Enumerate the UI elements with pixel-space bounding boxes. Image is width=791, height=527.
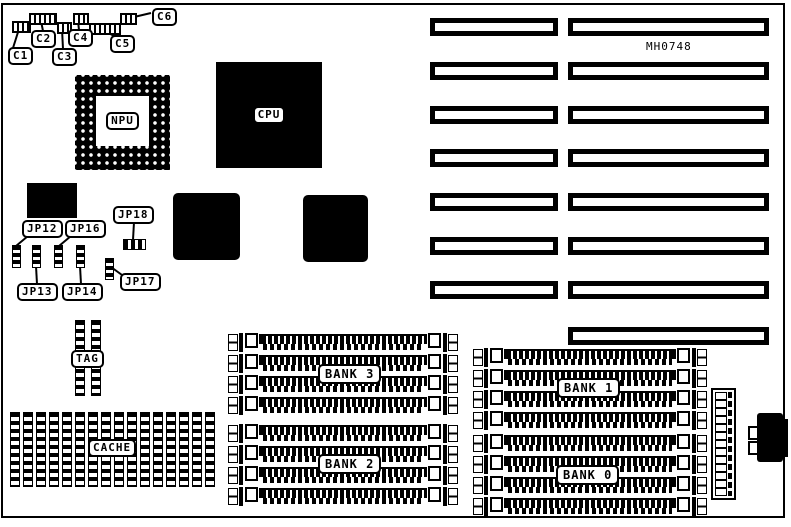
simm-end-bar-right [443,375,447,394]
npu-socket-center: NPU [96,96,149,146]
simm-end-bar-left [239,375,243,394]
simm-end-tab-right [448,376,458,393]
simm-pin-strip [504,412,676,429]
power-connector [711,388,736,500]
label-bank2: BANK 2 [318,454,381,474]
simm-teeth [508,508,672,514]
expansion-slot-segment-left [430,106,558,124]
expansion-slot-segment-right [568,106,769,124]
simm-end-bar-left [239,466,243,485]
simm-end-tab-left [473,391,483,408]
simm-clip-right [677,497,690,512]
qfp-chip-left [173,193,240,260]
simm-clip-right [428,424,441,439]
simm-end-bar-left [239,487,243,506]
jumper-block-jp13 [32,245,41,268]
label-npu: NPU [106,112,139,130]
simm-end-bar-right [692,455,696,474]
simm-clip-right [428,445,441,460]
simm-end-tab-left [228,334,238,351]
cpu-chip: CPU [216,62,322,168]
simm-clip-left [490,455,503,470]
simm-end-bar-left [484,476,488,495]
simm-contacts [504,412,676,422]
simm-end-bar-left [484,390,488,409]
expansion-slot-segment-left [430,193,558,211]
jumper-block-jp17 [105,258,114,280]
simm-teeth [508,422,672,428]
expansion-slot-segment-right [568,237,769,255]
expansion-slot-segment-left [430,62,558,80]
simm-socket [473,497,707,516]
label-jp16: JP16 [65,220,106,238]
simm-pin-strip [259,488,427,505]
expansion-slot-segment-left [430,18,558,36]
simm-socket [228,396,458,415]
simm-pin-strip [504,435,676,452]
simm-end-tab-left [228,446,238,463]
simm-clip-left [245,375,258,390]
simm-contacts [259,334,427,344]
expansion-slot-segment-right [568,18,769,36]
label-c3: C3 [52,48,77,66]
simm-pin-strip [259,425,427,442]
simm-clip-right [428,333,441,348]
simm-end-tab-right [448,355,458,372]
simm-end-bar-left [239,424,243,443]
ic-chip-small [27,183,77,218]
simm-end-tab-left [228,425,238,442]
simm-end-tab-right [697,412,707,429]
simm-end-bar-left [484,411,488,430]
label-c2: C2 [31,30,56,48]
simm-end-bar-right [443,466,447,485]
simm-end-tab-right [697,456,707,473]
expansion-slot-row [430,237,769,255]
capacitor-c2 [29,13,57,25]
simm-socket [228,333,458,352]
jumper-block-jp16 [54,245,63,268]
simm-clip-left [245,333,258,348]
simm-end-tab-right [448,467,458,484]
simm-teeth [508,487,672,493]
simm-clip-right [677,369,690,384]
cache-chip-socket [166,412,189,487]
label-jp14: JP14 [62,283,103,301]
simm-pin-strip [259,397,427,414]
simm-clip-right [428,466,441,481]
simm-contacts [259,488,427,498]
simm-socket [228,424,458,443]
simm-end-tab-left [473,370,483,387]
cache-chip-socket [36,412,59,487]
label-bank3: BANK 3 [318,364,381,384]
simm-end-bar-right [692,390,696,409]
simm-socket [473,434,707,453]
simm-end-tab-left [473,498,483,515]
simm-end-tab-left [228,467,238,484]
cache-chip-socket [140,412,163,487]
simm-clip-left [490,390,503,405]
simm-end-tab-left [473,412,483,429]
label-jp13: JP13 [17,283,58,301]
simm-contacts [504,435,676,445]
capacitor-c6 [120,13,137,25]
simm-pin-strip [504,498,676,515]
label-cpu: CPU [253,106,286,124]
simm-teeth [508,359,672,365]
expansion-slot-segment-right [568,281,769,299]
simm-clip-right [428,354,441,369]
simm-end-tab-right [697,477,707,494]
simm-contacts [504,349,676,359]
power-connector-pins [728,392,732,496]
simm-socket [473,348,707,367]
label-c6: C6 [152,8,177,26]
simm-end-bar-left [239,333,243,352]
npu-socket: NPU [75,75,170,170]
simm-end-bar-left [239,445,243,464]
simm-teeth [508,445,672,451]
simm-end-bar-left [484,348,488,367]
simm-end-bar-left [484,497,488,516]
simm-clip-left [245,487,258,502]
label-c5: C5 [110,35,135,53]
label-jp18: JP18 [113,206,154,224]
expansion-slot-row [430,106,769,124]
label-c1: C1 [8,47,33,65]
simm-teeth [263,344,423,350]
expansion-slot-row [430,18,769,36]
simm-clip-right [677,476,690,491]
label-jp17: JP17 [120,273,161,291]
simm-end-tab-left [473,456,483,473]
qfp-chip-right [303,195,368,262]
simm-end-bar-left [484,455,488,474]
simm-contacts [504,498,676,508]
simm-pin-strip [504,349,676,366]
simm-end-tab-left [228,488,238,505]
simm-end-bar-right [692,348,696,367]
simm-teeth [263,498,423,504]
simm-end-bar-right [692,497,696,516]
simm-socket [473,411,707,430]
label-tag: TAG [71,350,104,368]
expansion-slot-row [430,193,769,211]
label-jp12: JP12 [22,220,63,238]
expansion-slot-stack [430,18,769,299]
simm-teeth [263,435,423,441]
expansion-slot-segment-right-only [568,327,769,345]
simm-clip-left [490,411,503,426]
simm-clip-left [490,497,503,512]
expansion-slot-segment-right [568,62,769,80]
simm-end-tab-left [228,397,238,414]
simm-teeth [263,407,423,413]
simm-pin-strip [259,334,427,351]
simm-end-tab-right [448,425,458,442]
simm-teeth [508,401,672,407]
simm-clip-right [677,455,690,470]
simm-end-bar-right [443,445,447,464]
simm-end-bar-right [443,396,447,415]
simm-clip-right [428,487,441,502]
motherboard-diagram: C1 C2 C3 C4 C5 C6 NPU CPU JP12 JP16 JP18… [0,0,791,527]
simm-end-bar-right [692,369,696,388]
label-bank0: BANK 0 [556,465,619,485]
expansion-slot-segment-left [430,281,558,299]
expansion-slot-row [430,62,769,80]
simm-clip-right [428,396,441,411]
simm-end-bar-left [239,354,243,373]
simm-end-tab-right [697,349,707,366]
expansion-slot-segment-left [430,149,558,167]
simm-end-tab-left [473,435,483,452]
power-connector-sockets [715,392,727,496]
label-bank1: BANK 1 [557,378,620,398]
simm-clip-left [490,476,503,491]
simm-teeth [263,477,423,483]
simm-end-tab-right [448,397,458,414]
simm-end-tab-left [228,355,238,372]
simm-clip-left [490,434,503,449]
simm-end-bar-right [692,434,696,453]
simm-end-tab-right [697,498,707,515]
simm-clip-left [245,424,258,439]
jumper-block-jp14 [76,245,85,268]
label-cache: CACHE [88,439,136,457]
cache-chip-socket [62,412,85,487]
simm-clip-left [245,466,258,481]
expansion-slot-row [430,281,769,299]
simm-end-tab-right [697,435,707,452]
simm-end-bar-right [692,476,696,495]
simm-end-tab-right [448,446,458,463]
board-part-number: MH0748 [646,40,692,53]
capacitor-c4 [73,13,89,25]
expansion-slot-segment-right [568,193,769,211]
simm-end-tab-right [448,488,458,505]
capacitor-c5 [89,23,121,35]
jumper-block-jp18 [123,239,146,250]
simm-end-tab-right [697,370,707,387]
cache-chip-socket [192,412,215,487]
expansion-slot-segment-right [568,149,769,167]
simm-clip-right [677,390,690,405]
simm-teeth [263,386,423,392]
simm-end-bar-right [692,411,696,430]
expansion-slot-segment-left [430,237,558,255]
simm-clip-left [245,354,258,369]
simm-clip-left [490,348,503,363]
simm-clip-right [428,375,441,390]
simm-contacts [259,425,427,435]
simm-socket [228,487,458,506]
cache-chip-socket [10,412,33,487]
simm-clip-right [677,434,690,449]
simm-end-tab-right [448,334,458,351]
simm-end-bar-right [443,487,447,506]
simm-clip-left [245,396,258,411]
keyboard-connector-stub [779,419,788,457]
simm-clip-left [245,445,258,460]
label-c4: C4 [68,29,93,47]
simm-end-bar-right [443,333,447,352]
simm-end-bar-right [443,424,447,443]
simm-end-bar-left [484,369,488,388]
simm-end-tab-right [697,391,707,408]
simm-end-tab-left [228,376,238,393]
simm-end-bar-left [484,434,488,453]
expansion-slot-row [430,149,769,167]
simm-clip-right [677,348,690,363]
jumper-block-jp12 [12,245,21,268]
simm-end-bar-left [239,396,243,415]
simm-end-tab-left [473,349,483,366]
simm-clip-right [677,411,690,426]
simm-end-bar-right [443,354,447,373]
simm-contacts [259,397,427,407]
simm-end-tab-left [473,477,483,494]
simm-clip-left [490,369,503,384]
